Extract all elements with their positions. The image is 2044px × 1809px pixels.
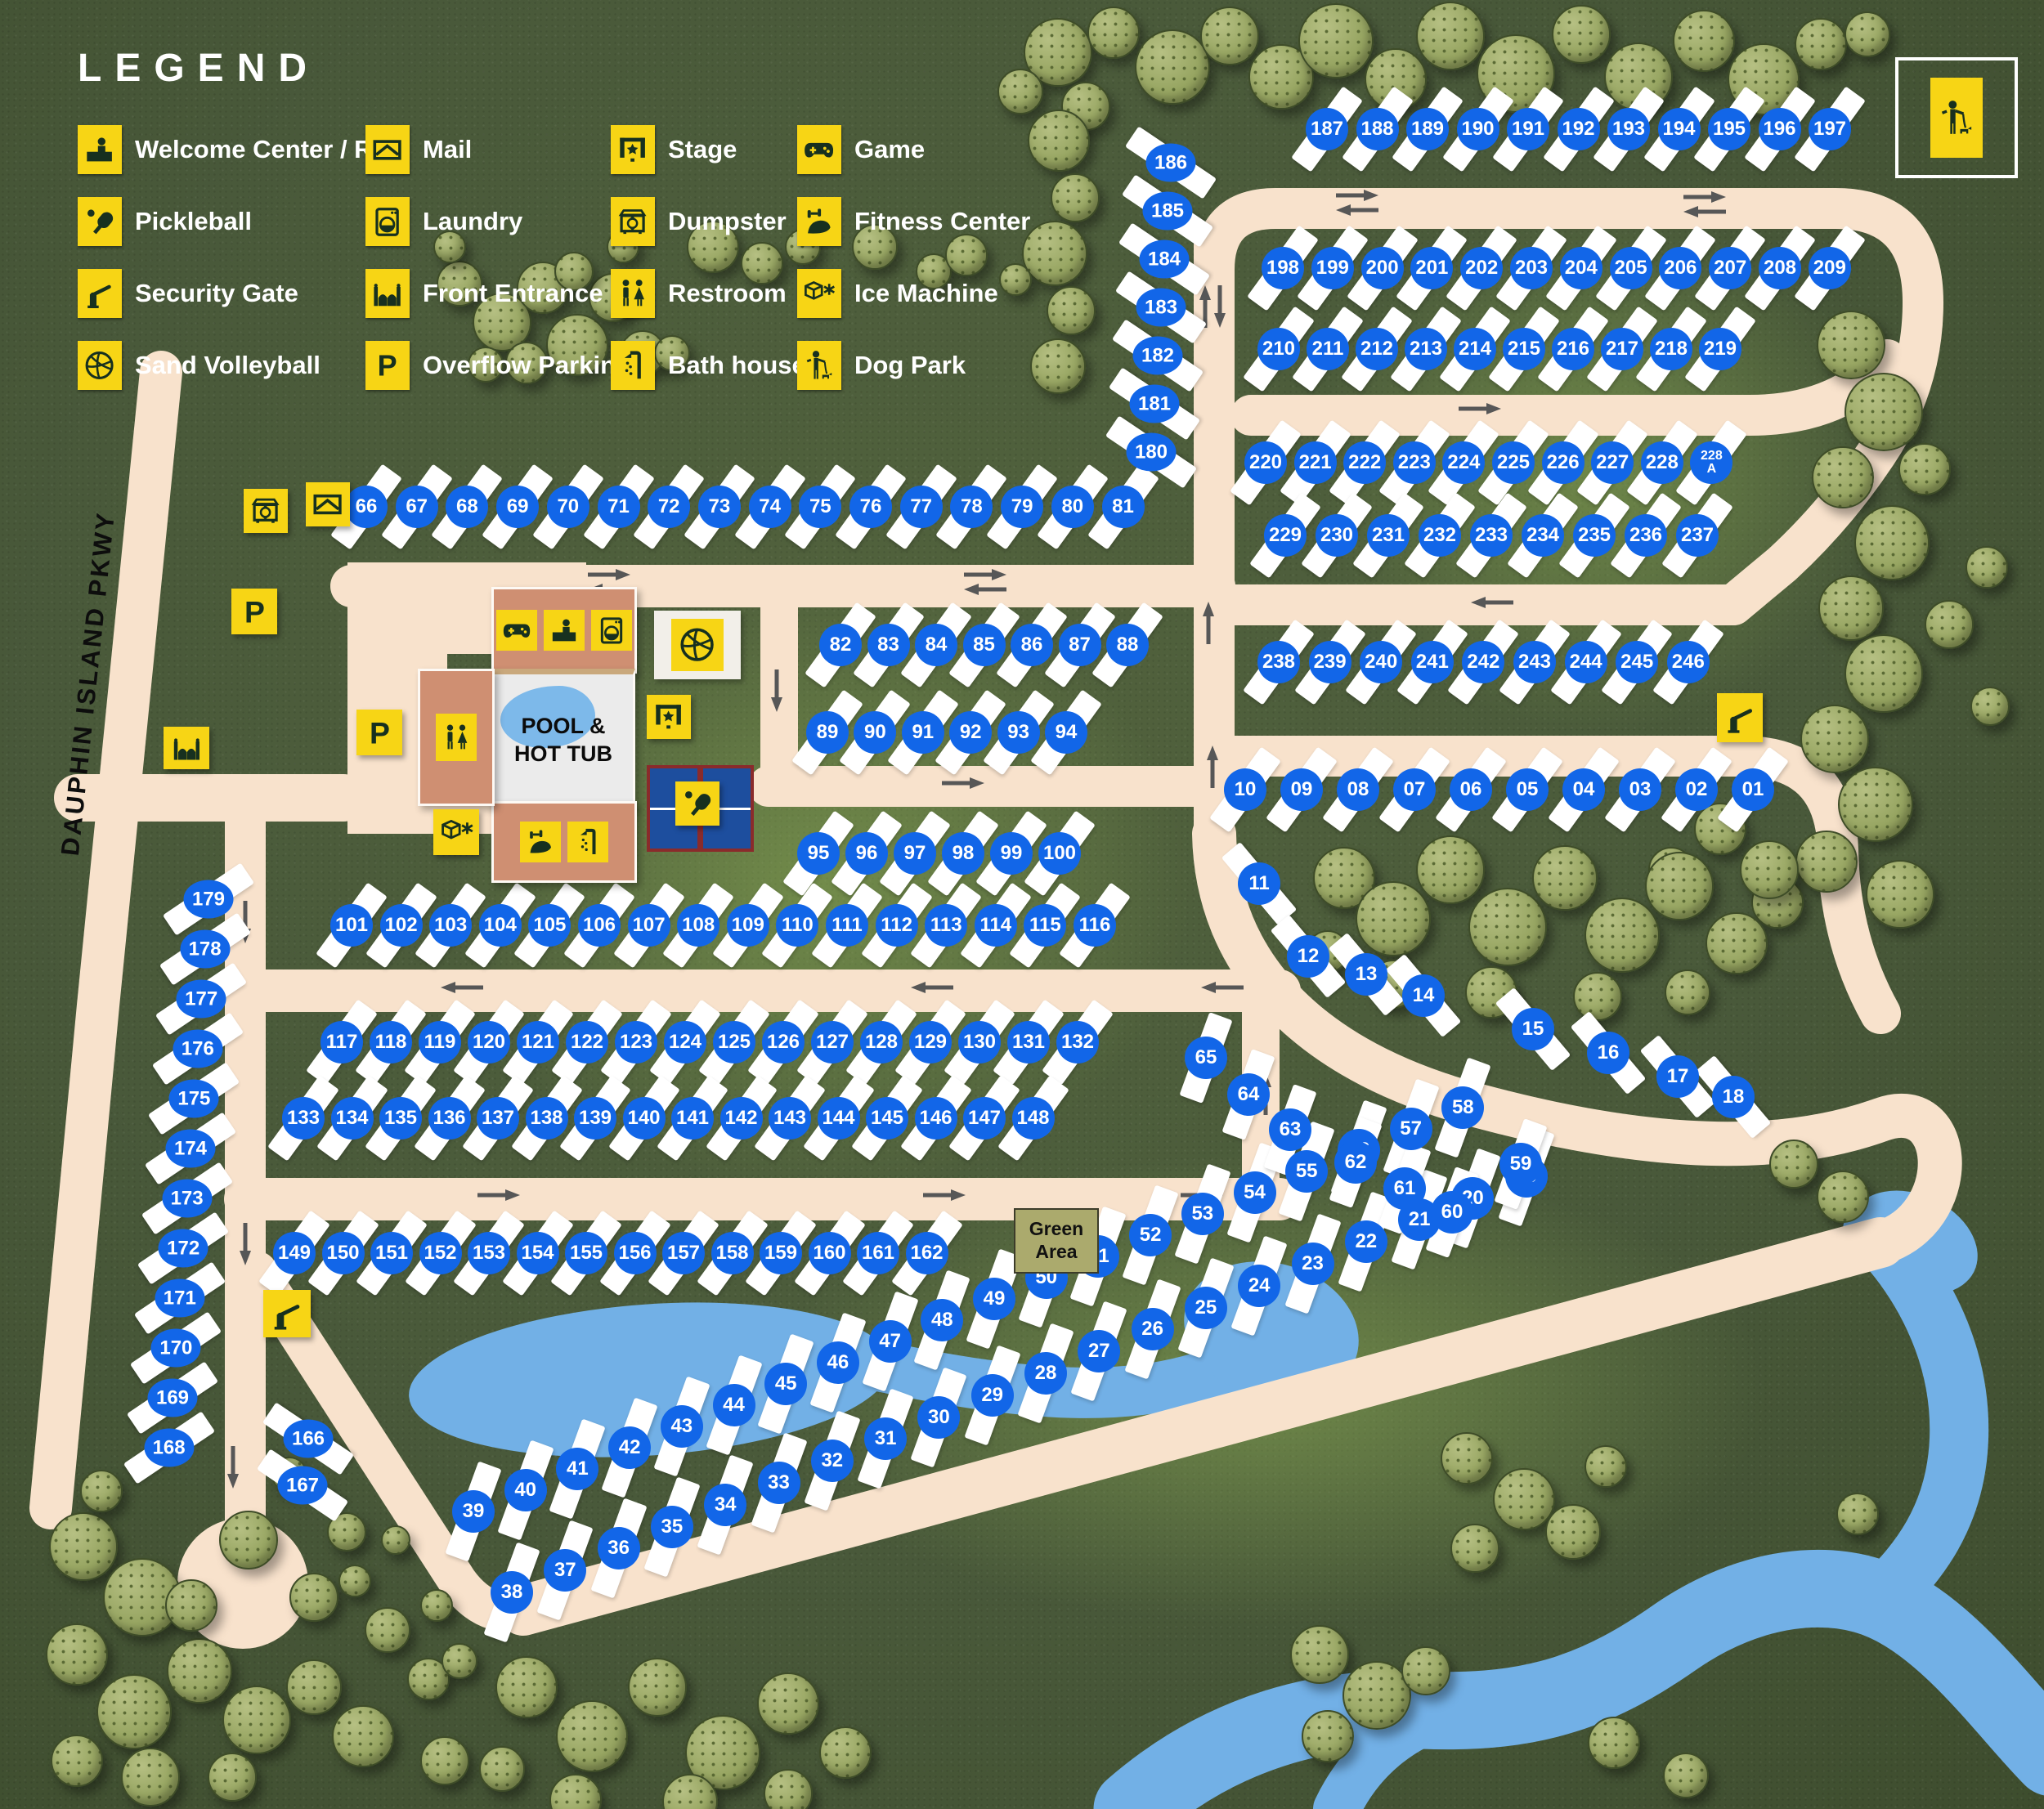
site-28: 28 <box>1024 1352 1067 1395</box>
tree <box>1401 1646 1450 1695</box>
restroom-icon <box>436 714 477 761</box>
site-180: 180 <box>1127 433 1177 472</box>
site-133: 133 <box>282 1097 325 1140</box>
site-149: 149 <box>273 1232 316 1274</box>
site-49: 49 <box>973 1278 1015 1320</box>
tree <box>556 1700 628 1772</box>
legend-item-bath-house: Bath house <box>611 329 797 401</box>
site-209: 209 <box>1809 247 1851 289</box>
pool-label: POOL & HOT TUB <box>514 713 612 768</box>
tree <box>1866 860 1934 929</box>
tree <box>1836 1493 1879 1535</box>
site-192: 192 <box>1558 108 1600 150</box>
site-178: 178 <box>180 930 230 969</box>
legend-item-mail: Mail <box>365 114 611 186</box>
site-83: 83 <box>867 624 910 666</box>
tree <box>1087 7 1140 59</box>
legend: LEGEND Welcome Center / RecPickleballSec… <box>78 46 1042 401</box>
tree <box>757 1672 819 1735</box>
site-193: 193 <box>1607 108 1650 150</box>
site-37: 37 <box>544 1549 586 1592</box>
site-136: 136 <box>428 1097 471 1140</box>
site-82: 82 <box>819 624 862 666</box>
site-77: 77 <box>900 486 943 528</box>
site-35: 35 <box>651 1506 693 1548</box>
direction-arrow <box>226 1444 240 1490</box>
ice-machine-icon <box>797 269 841 318</box>
welcome-center-icon <box>544 610 585 651</box>
site-205: 205 <box>1610 247 1652 289</box>
site-208: 208 <box>1759 247 1801 289</box>
legend-item-pickleball: Pickleball <box>78 186 365 257</box>
site-116: 116 <box>1074 904 1116 947</box>
site-142: 142 <box>720 1097 763 1140</box>
welcome-center-icon <box>78 125 122 174</box>
site-08: 08 <box>1337 768 1379 811</box>
site-140: 140 <box>623 1097 666 1140</box>
site-170: 170 <box>151 1329 201 1368</box>
site-199: 199 <box>1311 247 1354 289</box>
tree <box>442 1643 477 1679</box>
direction-arrow <box>439 981 485 994</box>
site-91: 91 <box>902 711 944 754</box>
tree <box>1532 845 1598 911</box>
site-235: 235 <box>1573 514 1616 557</box>
site-02: 02 <box>1675 768 1718 811</box>
site-207: 207 <box>1709 247 1751 289</box>
site-197: 197 <box>1809 108 1851 150</box>
direction-arrow <box>909 981 955 994</box>
site-65: 65 <box>1185 1037 1227 1079</box>
site-173: 173 <box>162 1180 212 1218</box>
site-18: 18 <box>1712 1076 1755 1118</box>
site-182: 182 <box>1133 337 1183 375</box>
site-128: 128 <box>860 1021 903 1063</box>
site-15: 15 <box>1512 1008 1554 1050</box>
sand-volleyball-icon <box>78 341 122 390</box>
game-icon <box>797 125 841 174</box>
site-201: 201 <box>1410 247 1453 289</box>
direction-arrow <box>476 1189 522 1202</box>
mail-icon <box>365 125 410 174</box>
site-41: 41 <box>556 1448 598 1490</box>
site-168: 168 <box>144 1429 194 1467</box>
site-30: 30 <box>917 1396 960 1439</box>
legend-item-label: Ice Machine <box>854 279 998 308</box>
tree <box>96 1674 172 1749</box>
tree <box>1493 1468 1555 1530</box>
site-227: 227 <box>1591 441 1634 484</box>
site-243: 243 <box>1513 641 1556 683</box>
tree <box>1795 18 1847 70</box>
site-76: 76 <box>849 486 892 528</box>
tree <box>479 1746 525 1792</box>
dumpster-icon <box>611 197 655 246</box>
tree <box>219 1511 278 1569</box>
site-59: 59 <box>1499 1143 1542 1185</box>
site-177: 177 <box>177 980 226 1019</box>
site-147: 147 <box>963 1097 1006 1140</box>
tree <box>1135 29 1210 105</box>
site-119: 119 <box>419 1021 461 1063</box>
tree <box>1845 11 1890 57</box>
site-130: 130 <box>958 1021 1001 1063</box>
tree <box>1545 1504 1601 1560</box>
tree <box>1854 505 1930 580</box>
site-60: 60 <box>1431 1191 1473 1234</box>
tree <box>1817 1171 1869 1223</box>
tree <box>420 1589 453 1622</box>
direction-arrow <box>1457 402 1503 415</box>
site-58: 58 <box>1441 1086 1484 1129</box>
tree <box>49 1512 118 1581</box>
legend-item-label: Restroom <box>668 279 787 308</box>
site-143: 143 <box>769 1097 811 1140</box>
welcome-rec-building <box>491 587 637 674</box>
sand-volleyball-area <box>654 611 741 679</box>
tree <box>286 1659 342 1715</box>
site-108: 108 <box>677 904 719 947</box>
site-53: 53 <box>1181 1193 1224 1235</box>
site-138: 138 <box>526 1097 568 1140</box>
site-52: 52 <box>1129 1214 1172 1256</box>
site-241: 241 <box>1411 641 1454 683</box>
tree <box>1416 835 1485 904</box>
site-07: 07 <box>1393 768 1436 811</box>
legend-item-label: Stage <box>668 135 737 164</box>
dumpster-icon <box>244 489 288 533</box>
site-242: 242 <box>1462 641 1504 683</box>
site-46: 46 <box>817 1341 859 1384</box>
tree <box>1706 912 1768 974</box>
site-09: 09 <box>1280 768 1323 811</box>
direction-arrow <box>962 568 1008 596</box>
tree <box>1845 634 1923 713</box>
site-141: 141 <box>671 1097 714 1140</box>
legend-item-label: Dog Park <box>854 351 966 380</box>
tree <box>1925 600 1974 649</box>
legend-item-label: Sand Volleyball <box>135 351 320 380</box>
site-113: 113 <box>925 904 967 947</box>
pickleball-icon <box>675 781 719 826</box>
legend-item-laundry: Laundry <box>365 186 611 257</box>
legend-item-label: Game <box>854 135 925 164</box>
dog-park-area <box>1895 57 2018 178</box>
site-169: 169 <box>148 1379 198 1417</box>
site-42: 42 <box>608 1426 651 1469</box>
site-69: 69 <box>496 486 539 528</box>
legend-item-sand-volleyball: Sand Volleyball <box>78 329 365 401</box>
site-13: 13 <box>1345 953 1387 996</box>
sand-volleyball-icon <box>671 619 724 671</box>
site-153: 153 <box>468 1232 510 1274</box>
site-150: 150 <box>322 1232 365 1274</box>
site-115: 115 <box>1024 904 1066 947</box>
game-icon <box>496 610 537 651</box>
legend-item-dumpster: Dumpster <box>611 186 797 257</box>
tree <box>1298 3 1374 78</box>
site-183: 183 <box>1136 289 1186 327</box>
site-174: 174 <box>166 1130 216 1168</box>
site-36: 36 <box>598 1527 640 1569</box>
site-39: 39 <box>452 1490 495 1533</box>
site-224: 224 <box>1442 441 1485 484</box>
tree <box>1573 972 1622 1021</box>
legend-item-label: Front Entrance <box>423 279 603 308</box>
site-99: 99 <box>990 832 1033 875</box>
site-240: 240 <box>1360 641 1402 683</box>
site-103: 103 <box>429 904 472 947</box>
tree <box>1645 852 1714 920</box>
tree <box>1588 1717 1640 1769</box>
site-155: 155 <box>565 1232 607 1274</box>
legend-item-security-gate: Security Gate <box>78 257 365 329</box>
site-232: 232 <box>1419 514 1461 557</box>
site-14: 14 <box>1402 974 1445 1017</box>
site-04: 04 <box>1562 768 1605 811</box>
site-78: 78 <box>950 486 993 528</box>
site-215: 215 <box>1503 328 1545 370</box>
direction-arrow <box>1334 189 1380 217</box>
site-117: 117 <box>320 1021 363 1063</box>
site-210: 210 <box>1257 328 1300 370</box>
site-86: 86 <box>1011 624 1053 666</box>
legend-item-dog-park: Dog Park <box>797 329 1042 401</box>
security-gate-icon <box>1717 693 1763 742</box>
site-194: 194 <box>1658 108 1701 150</box>
site-226: 226 <box>1542 441 1585 484</box>
site-196: 196 <box>1759 108 1801 150</box>
laundry-icon <box>365 197 410 246</box>
tree <box>51 1735 103 1787</box>
site-204: 204 <box>1560 247 1602 289</box>
site-62: 62 <box>1334 1141 1377 1184</box>
site-26: 26 <box>1132 1308 1174 1350</box>
restroom-building <box>418 669 495 806</box>
site-148: 148 <box>1012 1097 1055 1140</box>
legend-item-overflow-parking: Overflow Parking <box>365 329 611 401</box>
direction-arrow <box>1202 600 1215 646</box>
legend-item-label: Mail <box>423 135 472 164</box>
site-01: 01 <box>1732 768 1774 811</box>
front-entrance-icon <box>365 269 410 318</box>
fitness-center-icon <box>797 197 841 246</box>
site-213: 213 <box>1405 328 1447 370</box>
site-154: 154 <box>517 1232 559 1274</box>
site-221: 221 <box>1294 441 1337 484</box>
site-127: 127 <box>811 1021 854 1063</box>
site-219: 219 <box>1699 328 1741 370</box>
site-239: 239 <box>1309 641 1351 683</box>
site-81: 81 <box>1102 486 1145 528</box>
direction-arrow <box>1199 981 1245 994</box>
tree <box>1812 446 1874 508</box>
tree <box>1468 888 1547 966</box>
site-225: 225 <box>1492 441 1535 484</box>
laundry-icon <box>591 610 632 651</box>
tree <box>1356 881 1431 956</box>
site-161: 161 <box>857 1232 899 1274</box>
tree <box>1838 767 1913 842</box>
site-156: 156 <box>614 1232 657 1274</box>
green-area: Green Area <box>1014 1208 1099 1274</box>
site-73: 73 <box>698 486 741 528</box>
site-105: 105 <box>528 904 571 947</box>
site-152: 152 <box>419 1232 462 1274</box>
site-211: 211 <box>1307 328 1349 370</box>
site-151: 151 <box>370 1232 413 1274</box>
site-87: 87 <box>1059 624 1101 666</box>
site-17: 17 <box>1656 1055 1699 1098</box>
site-44: 44 <box>713 1384 755 1426</box>
site-31: 31 <box>864 1417 907 1460</box>
fitness-bath-building <box>491 801 637 883</box>
site-217: 217 <box>1601 328 1643 370</box>
site-202: 202 <box>1460 247 1503 289</box>
site-32: 32 <box>811 1440 854 1482</box>
site-90: 90 <box>854 711 896 754</box>
tree <box>165 1579 217 1632</box>
restroom-icon <box>611 269 655 318</box>
tree <box>1302 1710 1354 1762</box>
tree <box>1800 705 1869 773</box>
site-231: 231 <box>1367 514 1410 557</box>
site-47: 47 <box>869 1320 912 1363</box>
site-74: 74 <box>749 486 791 528</box>
site-125: 125 <box>713 1021 755 1063</box>
stage-icon <box>611 125 655 174</box>
site-121: 121 <box>517 1021 559 1063</box>
tree <box>420 1736 469 1785</box>
legend-item-fitness-center: Fitness Center <box>797 186 1042 257</box>
legend-item-label: Fitness Center <box>854 207 1030 236</box>
tree <box>1051 173 1100 222</box>
site-172: 172 <box>159 1229 208 1268</box>
tree <box>1740 840 1799 899</box>
direction-arrow <box>770 668 783 714</box>
site-57: 57 <box>1390 1108 1432 1150</box>
site-223: 223 <box>1393 441 1436 484</box>
site-23: 23 <box>1292 1243 1334 1285</box>
direction-arrow <box>1682 190 1728 218</box>
site-244: 244 <box>1565 641 1607 683</box>
ice-machine-icon <box>433 809 479 855</box>
tree <box>338 1565 371 1597</box>
security-gate-icon <box>78 269 122 318</box>
tree <box>1416 2 1485 70</box>
dog-park-icon <box>797 341 841 390</box>
site-114: 114 <box>975 904 1017 947</box>
tree <box>1450 1524 1499 1573</box>
site-228A: 228 A <box>1690 441 1732 484</box>
site-84: 84 <box>915 624 957 666</box>
site-80: 80 <box>1051 486 1094 528</box>
site-166: 166 <box>284 1420 334 1458</box>
tree <box>381 1525 410 1555</box>
site-63: 63 <box>1269 1108 1311 1151</box>
tree <box>1585 1445 1627 1488</box>
site-95: 95 <box>797 832 840 875</box>
stage-icon <box>647 695 691 739</box>
legend-item-label: Pickleball <box>135 207 252 236</box>
direction-arrow <box>239 1221 252 1267</box>
site-03: 03 <box>1619 768 1661 811</box>
site-236: 236 <box>1625 514 1667 557</box>
site-66: 66 <box>345 486 388 528</box>
site-129: 129 <box>909 1021 952 1063</box>
site-110: 110 <box>776 904 818 947</box>
site-10: 10 <box>1224 768 1266 811</box>
front-entrance-icon <box>164 727 209 769</box>
site-246: 246 <box>1667 641 1710 683</box>
dog-park-icon <box>1930 78 1983 158</box>
direction-arrow <box>1469 596 1515 609</box>
site-175: 175 <box>169 1080 219 1118</box>
legend-item-restroom: Restroom <box>611 257 797 329</box>
pool-hot-tub-area: POOL & HOT TUB <box>491 669 635 809</box>
legend-item-welcome-center-rec: Welcome Center / Rec <box>78 114 365 186</box>
site-188: 188 <box>1356 108 1399 150</box>
site-159: 159 <box>760 1232 802 1274</box>
site-185: 185 <box>1143 192 1193 231</box>
tree <box>1585 898 1660 973</box>
site-195: 195 <box>1708 108 1750 150</box>
tree <box>628 1658 687 1717</box>
tree <box>1898 443 1951 495</box>
site-238: 238 <box>1257 641 1300 683</box>
legend-item-ice-machine: Ice Machine <box>797 257 1042 329</box>
site-145: 145 <box>866 1097 908 1140</box>
site-120: 120 <box>468 1021 510 1063</box>
site-29: 29 <box>971 1374 1014 1417</box>
site-190: 190 <box>1457 108 1499 150</box>
tree <box>167 1638 232 1704</box>
overflow-parking-icon <box>231 589 277 634</box>
site-64: 64 <box>1227 1073 1270 1116</box>
site-06: 06 <box>1450 768 1492 811</box>
site-162: 162 <box>906 1232 948 1274</box>
site-176: 176 <box>173 1030 222 1068</box>
site-206: 206 <box>1659 247 1701 289</box>
site-72: 72 <box>648 486 690 528</box>
site-118: 118 <box>370 1021 412 1063</box>
legend-grid: Welcome Center / RecPickleballSecurity G… <box>78 114 1042 401</box>
site-54: 54 <box>1234 1171 1276 1214</box>
site-05: 05 <box>1506 768 1549 811</box>
site-27: 27 <box>1078 1330 1120 1372</box>
site-200: 200 <box>1361 247 1404 289</box>
site-220: 220 <box>1244 441 1287 484</box>
site-79: 79 <box>1001 486 1043 528</box>
tree <box>1200 7 1259 65</box>
site-181: 181 <box>1130 385 1180 423</box>
site-167: 167 <box>278 1466 328 1505</box>
site-158: 158 <box>711 1232 754 1274</box>
tree <box>1047 286 1096 335</box>
bath-house-icon <box>611 341 655 390</box>
site-61: 61 <box>1383 1167 1426 1210</box>
tree <box>1795 831 1858 893</box>
legend-item-label: Security Gate <box>135 279 298 308</box>
fitness-center-icon <box>520 822 561 862</box>
site-97: 97 <box>894 832 936 875</box>
tree <box>819 1726 872 1779</box>
site-104: 104 <box>479 904 522 947</box>
overflow-parking-icon <box>365 341 410 390</box>
site-228: 228 <box>1641 441 1683 484</box>
site-93: 93 <box>997 711 1040 754</box>
tree <box>1845 373 1923 451</box>
